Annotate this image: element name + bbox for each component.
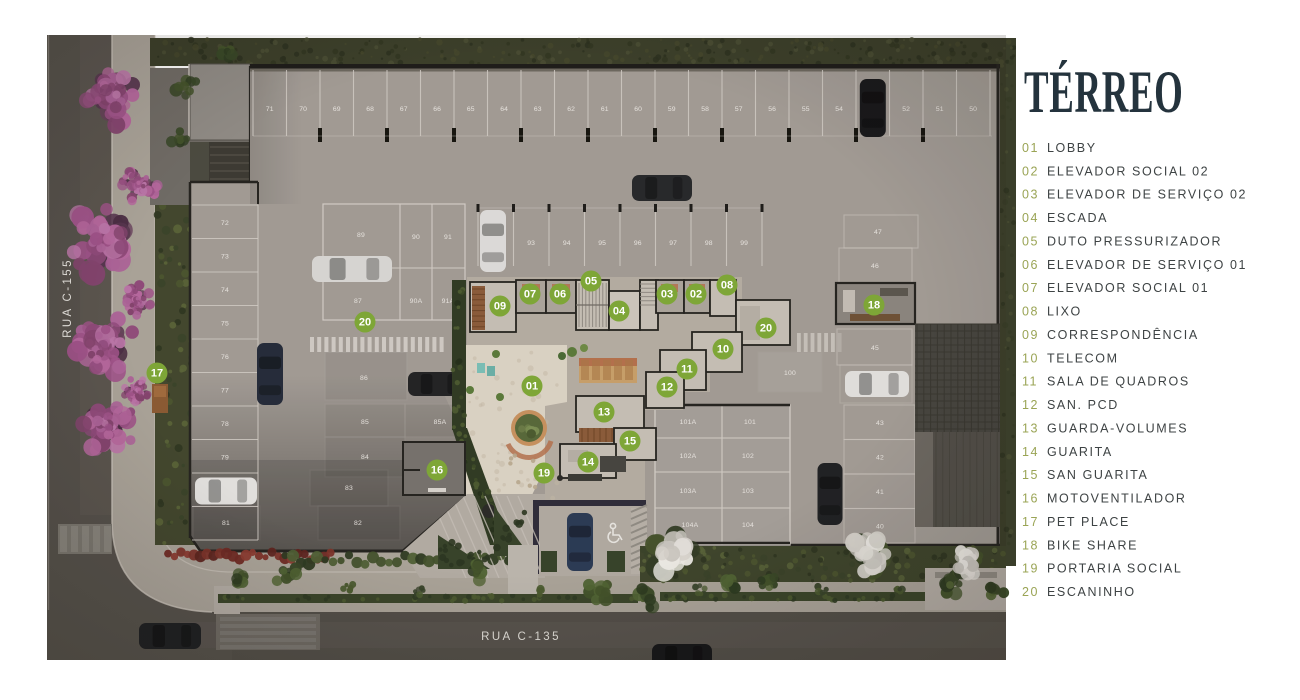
svg-text:15: 15 (1022, 468, 1039, 482)
svg-text:04: 04 (1022, 211, 1039, 225)
svg-text:17: 17 (151, 368, 163, 380)
svg-text:LOBBY: LOBBY (1047, 141, 1097, 155)
svg-text:SAN GUARITA: SAN GUARITA (1047, 468, 1148, 482)
svg-text:13: 13 (1022, 421, 1039, 435)
svg-text:ELEVADOR DE SERVIÇO 02: ELEVADOR DE SERVIÇO 02 (1047, 188, 1247, 202)
svg-text:16: 16 (431, 465, 443, 477)
svg-text:03: 03 (661, 289, 673, 301)
svg-text:11: 11 (681, 364, 693, 376)
svg-text:02: 02 (690, 289, 702, 301)
svg-text:12: 12 (661, 382, 673, 394)
svg-text:TÉRREO: TÉRREO (1024, 59, 1183, 125)
svg-text:ELEVADOR DE SERVIÇO 01: ELEVADOR DE SERVIÇO 01 (1047, 258, 1247, 272)
svg-text:PET PLACE: PET PLACE (1047, 515, 1130, 529)
svg-text:ESCADA: ESCADA (1047, 211, 1108, 225)
svg-text:MOTOVENTILADOR: MOTOVENTILADOR (1047, 492, 1187, 506)
svg-text:09: 09 (494, 301, 506, 313)
svg-text:13: 13 (598, 407, 610, 419)
svg-text:03: 03 (1022, 188, 1039, 202)
svg-text:12: 12 (1022, 398, 1039, 412)
svg-text:01: 01 (1022, 141, 1039, 155)
svg-text:CORRESPONDÊNCIA: CORRESPONDÊNCIA (1047, 327, 1199, 342)
svg-text:19: 19 (1022, 562, 1039, 576)
svg-text:GUARDA-VOLUMES: GUARDA-VOLUMES (1047, 421, 1188, 435)
svg-text:16: 16 (1022, 492, 1039, 506)
svg-text:ELEVADOR SOCIAL 02: ELEVADOR SOCIAL 02 (1047, 164, 1209, 178)
svg-text:04: 04 (613, 306, 626, 318)
svg-text:14: 14 (582, 457, 595, 469)
svg-text:07: 07 (1022, 281, 1039, 295)
svg-text:05: 05 (1022, 235, 1039, 249)
svg-text:20: 20 (359, 317, 371, 329)
svg-text:08: 08 (1022, 305, 1039, 319)
svg-text:19: 19 (538, 468, 550, 480)
svg-text:01: 01 (526, 381, 538, 393)
svg-text:20: 20 (760, 323, 772, 335)
svg-text:SALA DE QUADROS: SALA DE QUADROS (1047, 375, 1190, 389)
svg-text:11: 11 (1022, 375, 1038, 389)
svg-text:10: 10 (717, 344, 729, 356)
svg-text:RUA C-135: RUA C-135 (481, 631, 561, 643)
svg-text:08: 08 (721, 280, 733, 292)
svg-text:DUTO PRESSURIZADOR: DUTO PRESSURIZADOR (1047, 235, 1222, 249)
svg-text:18: 18 (868, 300, 880, 312)
svg-text:18: 18 (1022, 538, 1039, 552)
svg-text:ELEVADOR SOCIAL 01: ELEVADOR SOCIAL 01 (1047, 281, 1209, 295)
svg-text:17: 17 (1022, 515, 1039, 529)
svg-text:02: 02 (1022, 164, 1039, 178)
svg-text:15: 15 (624, 436, 636, 448)
svg-text:TELECOM: TELECOM (1047, 351, 1119, 365)
svg-text:09: 09 (1022, 328, 1039, 342)
svg-text:14: 14 (1022, 445, 1039, 459)
svg-text:20: 20 (1022, 585, 1039, 599)
svg-text:06: 06 (554, 289, 566, 301)
svg-text:SAN. PCD: SAN. PCD (1047, 398, 1119, 412)
svg-text:LIXO: LIXO (1047, 305, 1082, 319)
svg-text:07: 07 (524, 289, 536, 301)
svg-text:10: 10 (1022, 351, 1039, 365)
svg-text:ESCANINHO: ESCANINHO (1047, 585, 1136, 599)
svg-text:GUARITA: GUARITA (1047, 445, 1113, 459)
svg-text:05: 05 (585, 276, 597, 288)
svg-text:06: 06 (1022, 258, 1039, 272)
svg-text:RUA C-155: RUA C-155 (62, 258, 74, 338)
svg-text:PORTARIA SOCIAL: PORTARIA SOCIAL (1047, 562, 1182, 576)
svg-text:BIKE SHARE: BIKE SHARE (1047, 538, 1138, 552)
